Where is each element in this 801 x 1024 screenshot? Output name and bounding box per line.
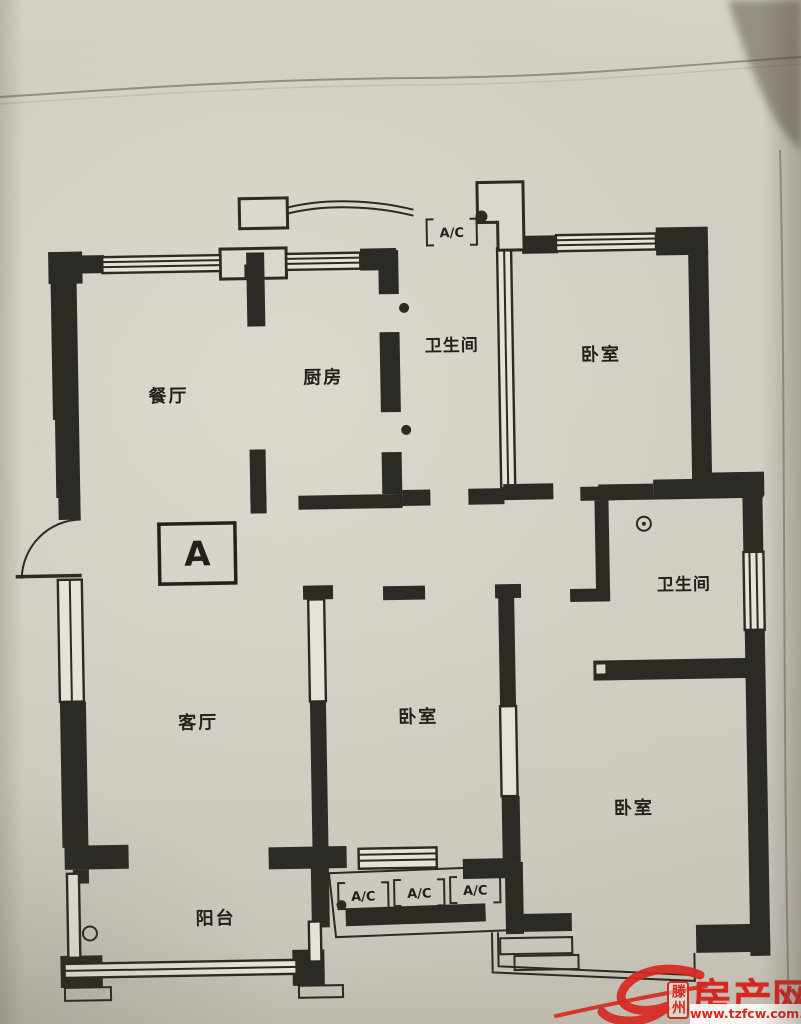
room-label-balcony: 阳台 xyxy=(196,907,236,930)
ac-unit-top: A/C xyxy=(427,219,477,246)
room-label-bed-middle: 卧室 xyxy=(398,705,438,728)
balcony-drain-icon xyxy=(83,926,97,940)
ac-unit-bottom-2: A/C xyxy=(394,879,444,906)
room-label-bed-top-right: 卧室 xyxy=(581,343,621,366)
floor-plan: A A/C A/C A/C A/C 餐厅 厨房 卫生间 卧室 卫生间 客厅 卧室 xyxy=(9,178,773,1003)
watermark-site-url: www.tzfcw.com.cn xyxy=(690,1004,801,1024)
paper-curl-line xyxy=(0,57,801,104)
unit-label: A xyxy=(184,534,212,574)
windows xyxy=(52,232,771,978)
room-label-bath-right: 卫生间 xyxy=(657,574,711,596)
balcony-corner-steps xyxy=(65,983,343,1002)
room-label-bed-bottom: 卧室 xyxy=(614,797,654,820)
roof-flue xyxy=(239,182,524,255)
entry-door-swing-arc xyxy=(15,520,82,579)
paper-corner-shadow xyxy=(728,0,801,150)
ac-unit-bottom-3: A/C xyxy=(450,876,500,903)
ac-label: A/C xyxy=(439,226,464,241)
unit-label-box: A xyxy=(159,523,236,584)
exterior-walls xyxy=(48,226,773,990)
ac-label: A/C xyxy=(407,886,432,901)
door-hinge-dot xyxy=(399,303,411,435)
room-label-dining: 餐厅 xyxy=(147,385,188,408)
room-label-bath-top: 卫生间 xyxy=(425,335,479,357)
room-label-living: 客厅 xyxy=(178,711,218,734)
room-labels: 餐厅 厨房 卫生间 卧室 卫生间 客厅 卧室 卧室 阳台 xyxy=(147,331,717,931)
floor-drain-icon xyxy=(637,517,651,531)
ac-label: A/C xyxy=(351,889,376,904)
bay-outline xyxy=(492,929,695,985)
floor-plan-photo: A A/C A/C A/C A/C 餐厅 厨房 卫生间 卧室 卫生间 客厅 卧室 xyxy=(0,0,801,1024)
ac-label: A/C xyxy=(463,884,488,899)
paper-edge-line xyxy=(780,150,789,1024)
room-label-kitchen: 厨房 xyxy=(303,366,343,389)
floor-plan-drawing: A A/C A/C A/C A/C 餐厅 厨房 卫生间 卧室 卫生间 客厅 卧室 xyxy=(0,0,801,1024)
watermark-city-badge: 滕州 xyxy=(667,981,689,1019)
